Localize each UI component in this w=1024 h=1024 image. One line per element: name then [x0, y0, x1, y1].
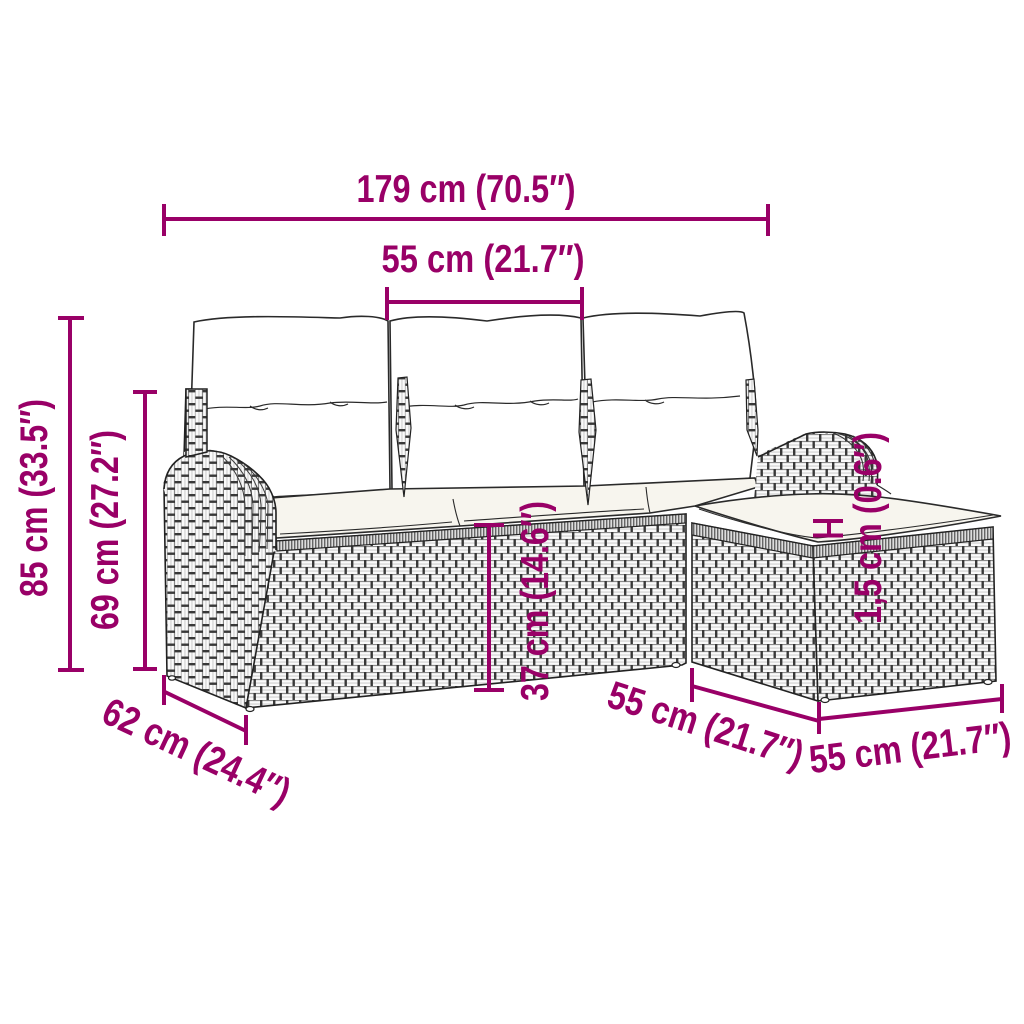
svg-text:1,5 cm (0.6″): 1,5 cm (0.6″)	[847, 432, 890, 624]
svg-text:37 cm (14.6″): 37 cm (14.6″)	[514, 501, 557, 701]
svg-text:55 cm (21.7″): 55 cm (21.7″)	[382, 238, 585, 281]
svg-text:85 cm (33.5″): 85 cm (33.5″)	[13, 399, 56, 597]
svg-text:69 cm (27.2″): 69 cm (27.2″)	[84, 430, 127, 630]
svg-text:179 cm (70.5″): 179 cm (70.5″)	[357, 168, 576, 211]
